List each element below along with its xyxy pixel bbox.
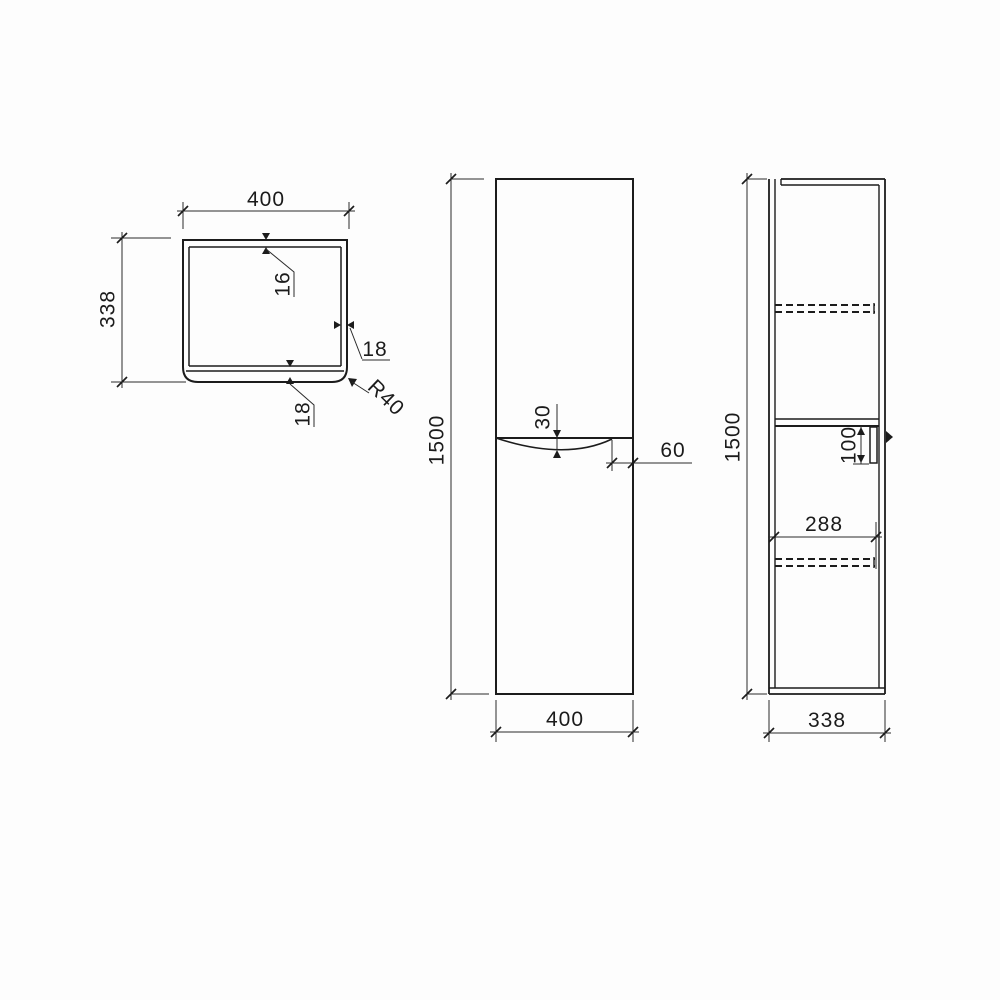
drawing-sheet: 400 338 16 18 [0, 0, 1000, 1000]
dim-recess-offset: 60 [606, 439, 692, 471]
dim-front-width-label: 400 [546, 708, 584, 731]
dim-front-width: 400 [490, 700, 639, 742]
arrowhead [553, 430, 561, 438]
front-view: 1500 30 60 400 [426, 173, 693, 742]
side-panel-thickness-label: 18 [362, 338, 387, 361]
arrowhead [262, 247, 270, 254]
technical-drawing-canvas: 400 338 16 18 [0, 0, 1000, 1000]
top-panel-thickness-label: 16 [272, 271, 295, 296]
dim-recess-depth-label: 30 [532, 404, 555, 429]
dim-top-width: 400 [177, 188, 355, 229]
dim-front-height: 1500 [426, 173, 490, 700]
front-view-outline [496, 179, 633, 694]
top-view: 400 338 16 18 [97, 188, 409, 427]
front-handle-recess-curve [496, 438, 612, 450]
callout-corner-radius: R40 [348, 375, 409, 420]
dim-front-height-label: 1500 [426, 415, 449, 466]
dim-recess-depth: 30 [532, 404, 562, 458]
dim-side-depth-label: 338 [808, 709, 846, 732]
arrowhead [286, 377, 294, 384]
leader-line [350, 328, 362, 359]
callout-side-panel-18: 18 [334, 321, 390, 361]
dim-handle-length-label: 100 [838, 426, 861, 464]
arrowhead [334, 321, 341, 329]
arrowhead [347, 321, 354, 329]
handle-tip-mark [886, 431, 893, 443]
arrowhead [553, 450, 561, 458]
dim-top-depth-label: 338 [97, 290, 120, 328]
dim-side-height: 1500 [722, 173, 768, 700]
dim-interior-depth: 288 [768, 513, 882, 569]
top-view-outline [183, 240, 347, 382]
callout-top-panel-16: 16 [262, 233, 295, 297]
corner-radius-label: R40 [363, 375, 409, 420]
callout-front-panel-18: 18 [286, 360, 315, 427]
side-view: 100 288 1500 338 [722, 173, 894, 742]
dim-handle-length: 100 [838, 426, 870, 464]
dim-top-depth: 338 [97, 232, 187, 388]
dim-side-height-label: 1500 [722, 412, 745, 463]
door-handle-side-profile [870, 427, 877, 463]
dim-top-width-label: 400 [247, 188, 285, 211]
arrowhead [262, 233, 270, 240]
dim-side-depth: 338 [763, 700, 891, 742]
dim-interior-depth-label: 288 [805, 513, 843, 536]
front-panel-thickness-label: 18 [292, 401, 315, 426]
dim-recess-offset-label: 60 [660, 439, 685, 462]
